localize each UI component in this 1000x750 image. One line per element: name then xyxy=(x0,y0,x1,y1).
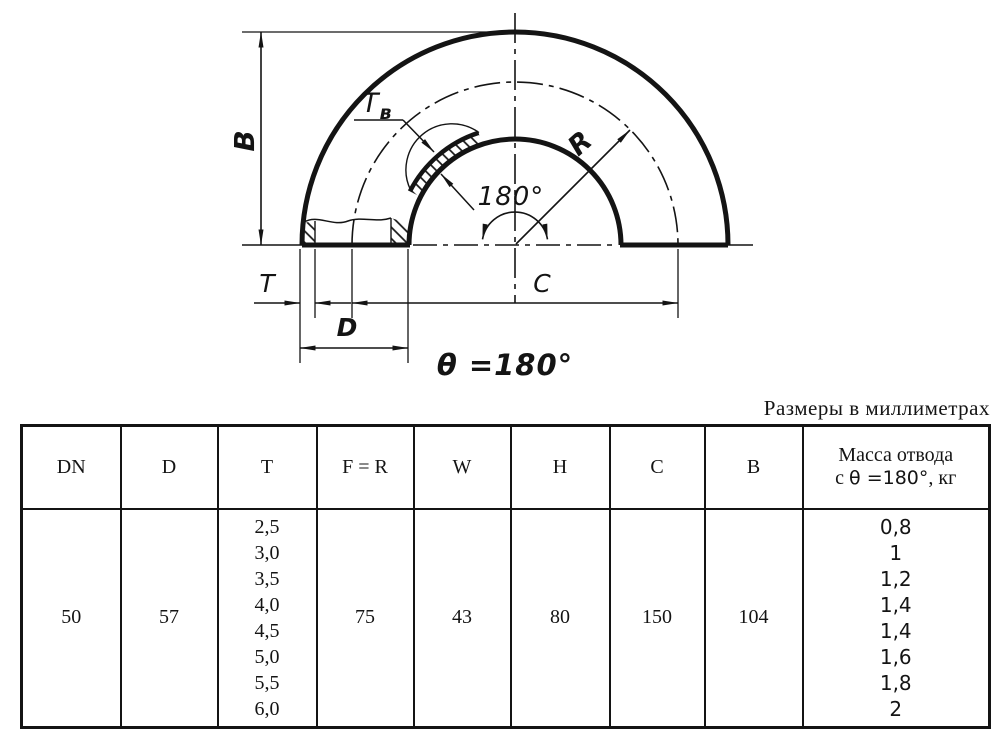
end-face-section xyxy=(303,218,409,245)
b-label: B xyxy=(228,130,261,151)
d-dimension: D xyxy=(300,249,408,363)
column-header-mass: Масса отвода с θ =180°, кг xyxy=(803,426,990,509)
theta-label: θ =180° xyxy=(437,348,573,382)
header-row: DN D T F = R W H C B Масса отвода с θ =1… xyxy=(22,426,990,509)
column-header-b: B xyxy=(705,426,803,509)
cell-b: 104 xyxy=(705,509,803,728)
left-wall-hatch xyxy=(303,221,315,245)
units-note: Размеры в миллиметрах xyxy=(764,396,990,421)
mass-values-list: 0,8 1 1,2 1,4 1,4 1,6 1,8 2 xyxy=(804,514,989,722)
cell-d: 57 xyxy=(121,509,218,728)
cell-t: 2,5 3,0 3,5 4,0 4,5 5,0 5,5 6,0 xyxy=(218,509,317,728)
angle-label: 180° xyxy=(478,182,545,212)
column-header-w: W xyxy=(414,426,511,509)
c-label: C xyxy=(533,269,551,298)
r-label: R xyxy=(562,125,598,162)
cell-dn: 50 xyxy=(22,509,121,728)
t-values-list: 2,5 3,0 3,5 4,0 4,5 5,0 5,5 6,0 xyxy=(219,514,316,722)
column-header-d: D xyxy=(121,426,218,509)
column-header-c: C xyxy=(610,426,705,509)
mass-header-line2: с θ =180°, кг xyxy=(804,467,989,490)
elbow-180-drawing: Tв B R 180° C xyxy=(0,0,1000,400)
mass-header-line1: Масса отвода xyxy=(804,444,989,467)
t-dimension: T xyxy=(254,249,351,363)
angle-dimension: 180° xyxy=(478,182,548,239)
dimensions-table: DN D T F = R W H C B Масса отвода с θ =1… xyxy=(20,424,991,729)
cell-fr: 75 xyxy=(317,509,414,728)
column-header-fr: F = R xyxy=(317,426,414,509)
cell-h: 80 xyxy=(511,509,610,728)
column-header-t: T xyxy=(218,426,317,509)
right-wall-hatch xyxy=(391,218,409,245)
cell-c: 150 xyxy=(610,509,705,728)
tv-leader-arrow xyxy=(403,120,434,152)
drawing-sheet: Tв B R 180° C xyxy=(0,0,1000,750)
t-label: T xyxy=(259,269,276,298)
tv-counter-arrow xyxy=(441,174,474,210)
data-row: 50 57 2,5 3,0 3,5 4,0 4,5 5,0 5,5 6,0 75 xyxy=(22,509,990,728)
tv-label: Tв xyxy=(362,88,392,124)
d-label: D xyxy=(337,313,358,342)
cell-mass: 0,8 1 1,2 1,4 1,4 1,6 1,8 2 xyxy=(803,509,990,728)
column-header-dn: DN xyxy=(22,426,121,509)
wall-thickness-detail: Tв xyxy=(354,88,482,210)
cell-w: 43 xyxy=(414,509,511,728)
break-wavy-line xyxy=(304,218,391,223)
column-header-h: H xyxy=(511,426,610,509)
